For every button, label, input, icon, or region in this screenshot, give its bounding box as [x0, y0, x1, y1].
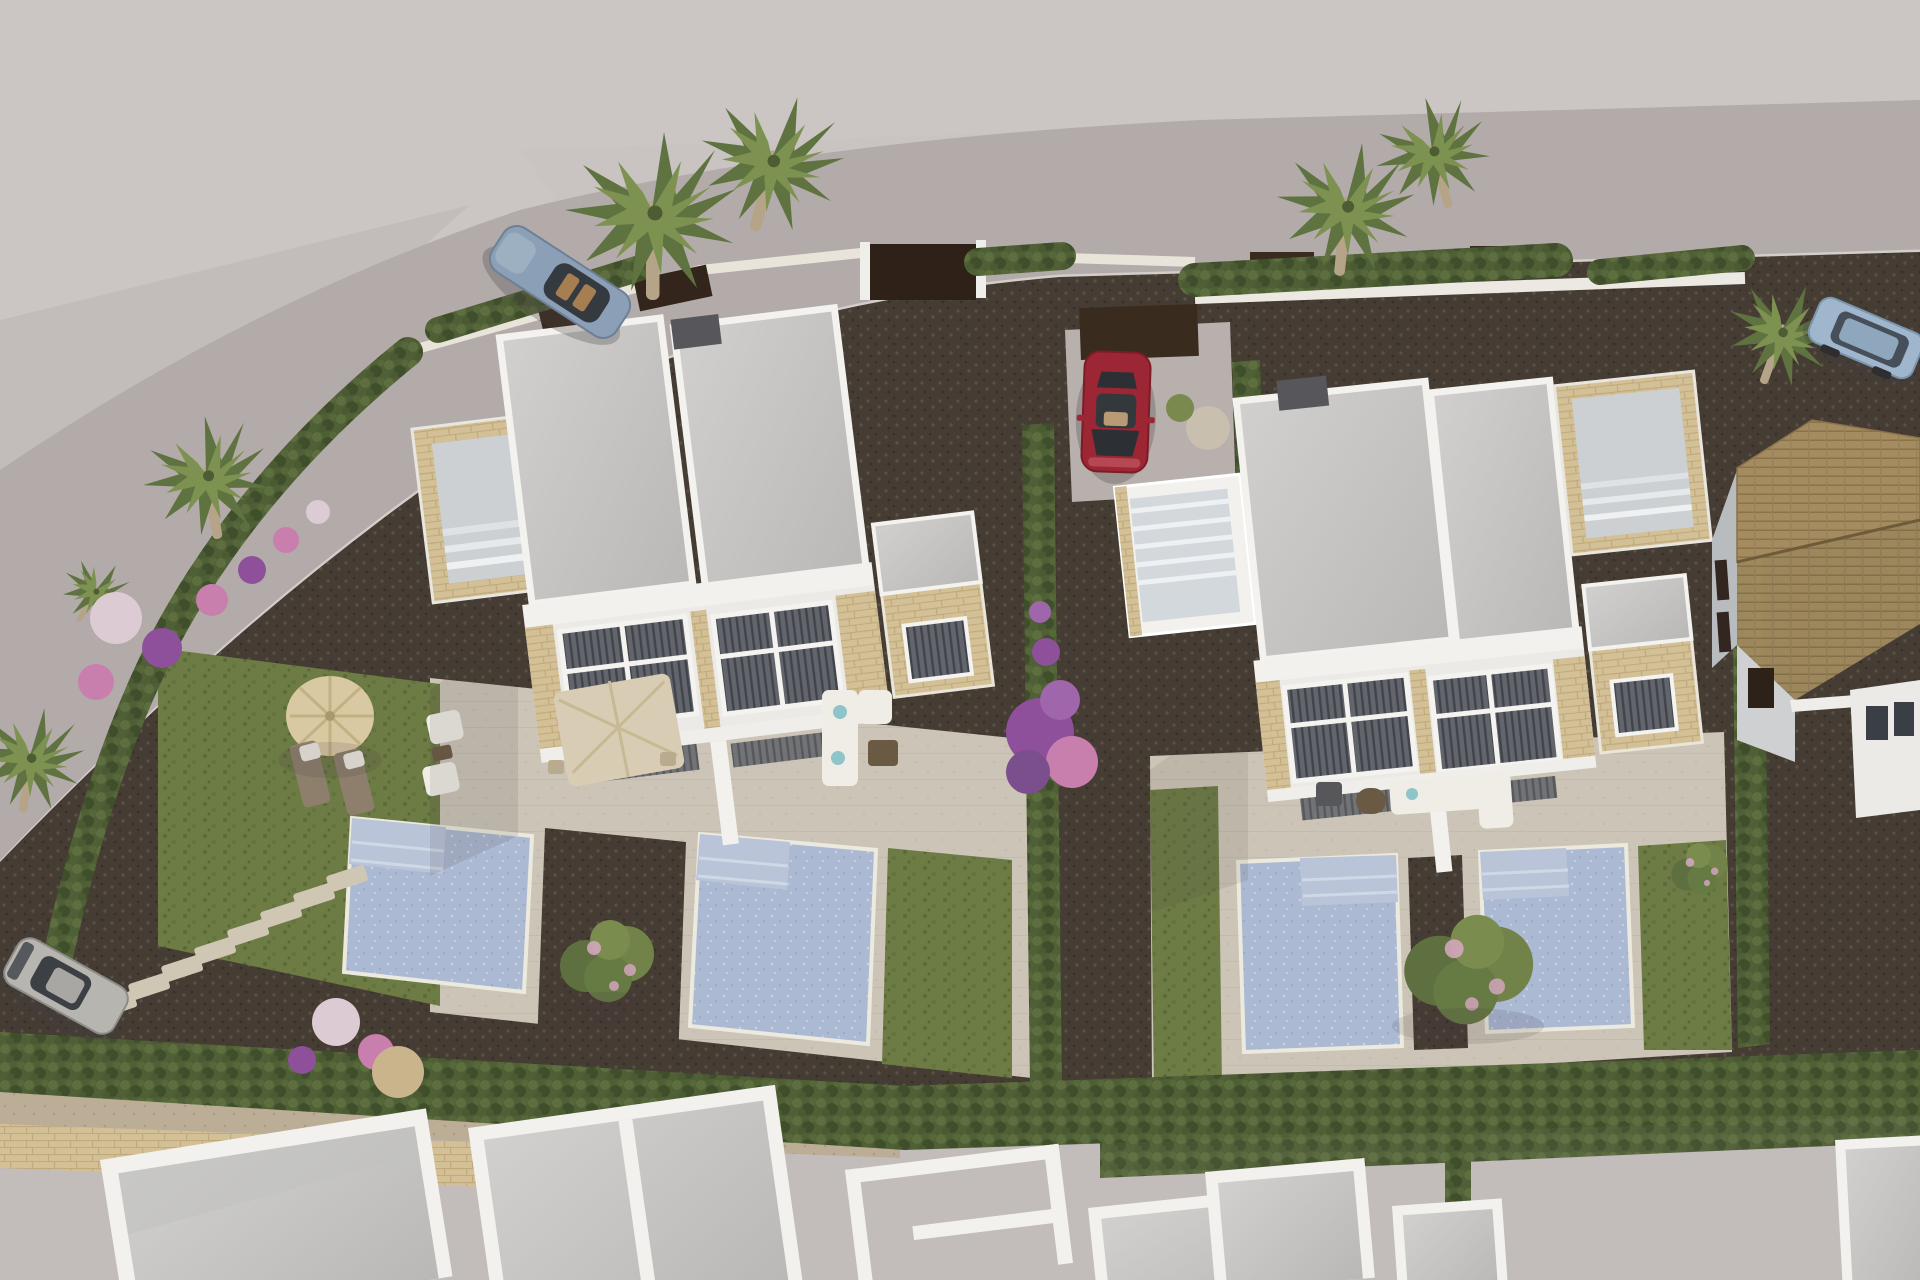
rooftop-ac-unit — [1276, 376, 1329, 411]
side-mirror — [1077, 415, 1085, 421]
top-hedge-segment — [978, 256, 1062, 262]
annex-east — [873, 512, 993, 697]
window — [1894, 702, 1914, 736]
rendering-canvas — [0, 0, 1920, 1280]
top-right-road-hedge-2 — [1600, 258, 1742, 272]
garage-door — [870, 244, 976, 300]
stair-annex-west — [1114, 474, 1255, 636]
annex-window — [904, 618, 972, 681]
bbq-grill — [1316, 782, 1342, 806]
window — [1866, 706, 1888, 740]
annex-window — [1612, 675, 1677, 735]
rear-window — [1097, 371, 1138, 388]
car-hood — [1088, 457, 1140, 468]
annex-east — [1583, 575, 1702, 753]
ornamental-grass — [1166, 394, 1194, 422]
gate-post — [860, 242, 870, 300]
window — [1748, 668, 1774, 708]
left-garden-lawn-east — [882, 848, 1012, 1078]
rooftop-ac-unit — [671, 314, 722, 350]
pool-left-2 — [690, 834, 876, 1044]
windshield — [1090, 429, 1139, 457]
upper-window — [1284, 675, 1415, 781]
side-mirror — [1147, 417, 1155, 423]
pool-right-1 — [1238, 855, 1402, 1052]
car-interior — [1104, 412, 1128, 427]
roof-terrace-east — [1554, 371, 1711, 555]
top-right-road-hedge — [1195, 260, 1556, 280]
garden-boulder — [372, 1046, 424, 1098]
main-roof — [1234, 352, 1576, 663]
red-sedan — [1074, 351, 1159, 486]
upper-window — [1430, 666, 1559, 772]
scene-svg — [0, 0, 1920, 1280]
